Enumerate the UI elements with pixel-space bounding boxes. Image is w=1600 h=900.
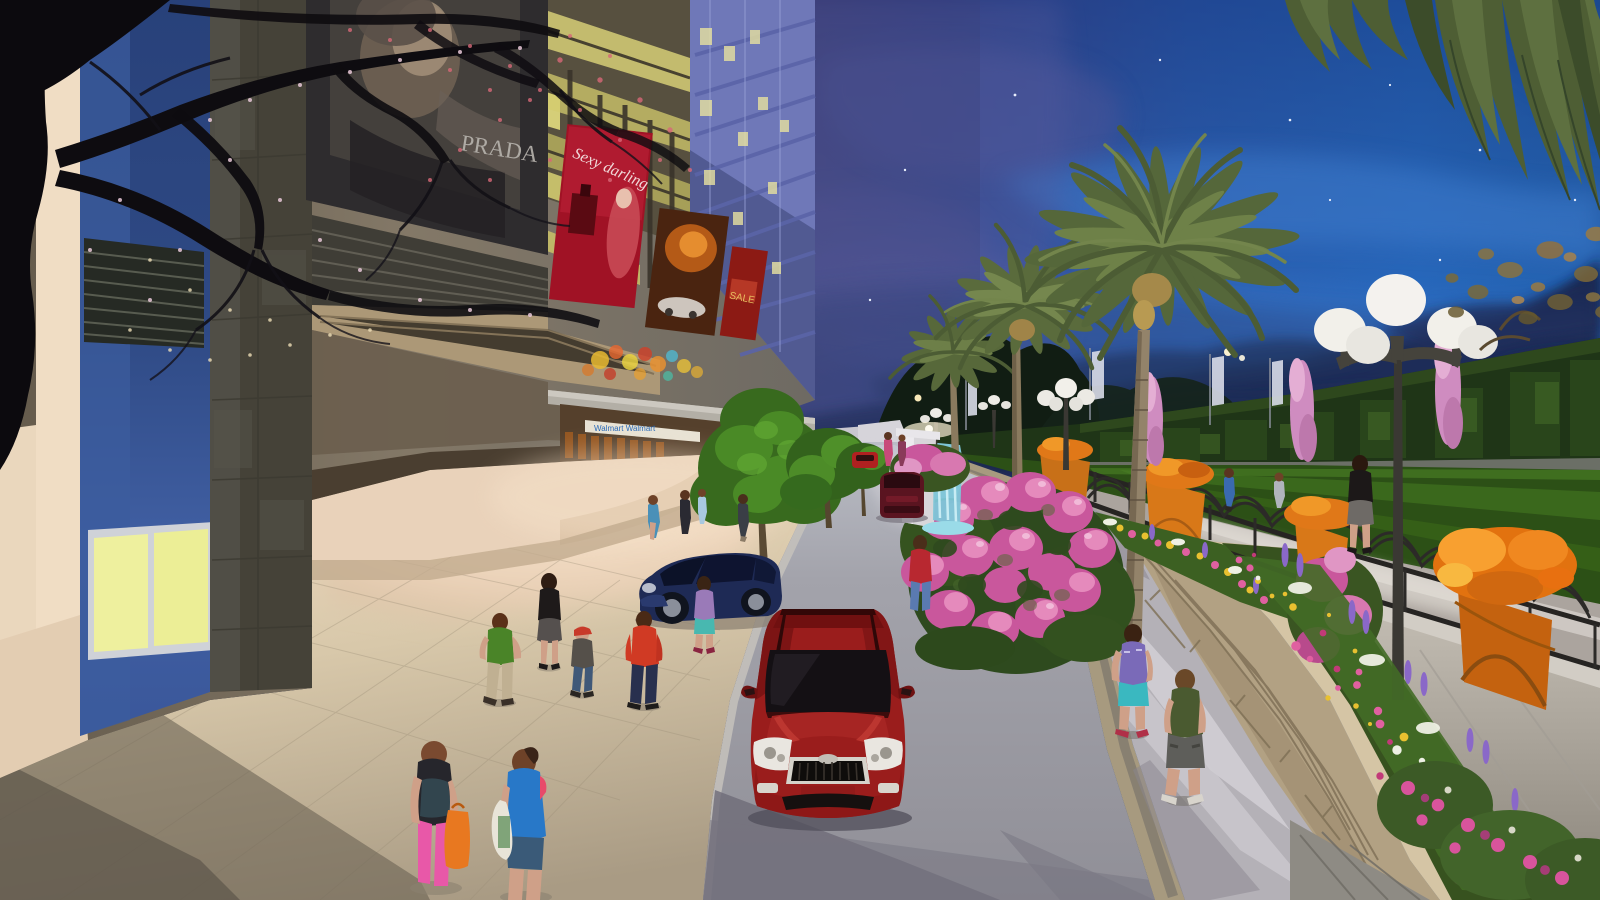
svg-text:Walmart Walmart: Walmart Walmart [594,424,656,433]
